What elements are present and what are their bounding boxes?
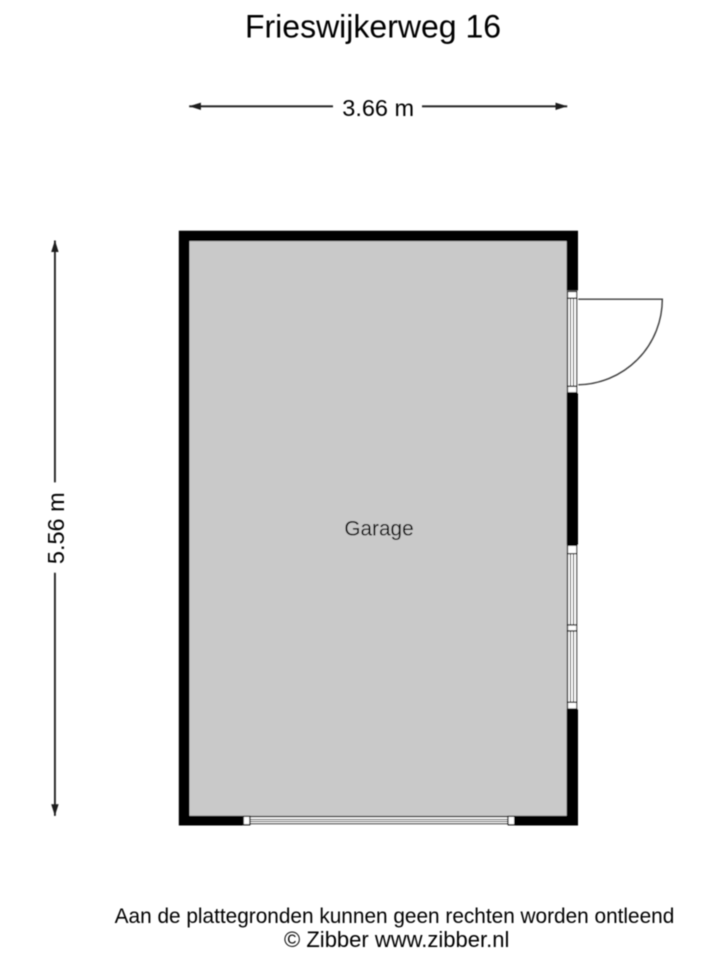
svg-text:Frieswijkerweg 16: Frieswijkerweg 16 xyxy=(245,9,501,45)
svg-text:Aan de plattegronden kunnen ge: Aan de plattegronden kunnen geen rechten… xyxy=(115,905,675,928)
svg-text:Garage: Garage xyxy=(344,517,413,540)
svg-text:3.66 m: 3.66 m xyxy=(342,95,414,121)
svg-text:5.56 m: 5.56 m xyxy=(43,492,69,564)
svg-text:© Zibber www.zibber.nl: © Zibber www.zibber.nl xyxy=(284,927,509,952)
